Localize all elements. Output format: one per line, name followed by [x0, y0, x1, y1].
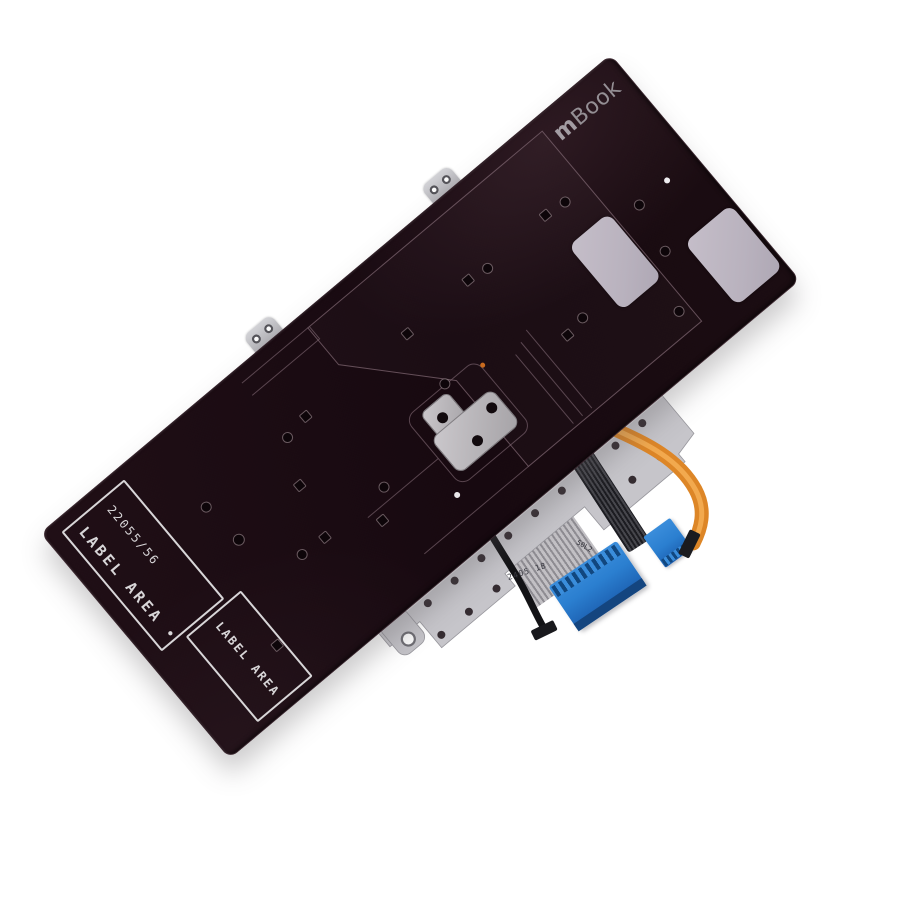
- reflective-dot: [453, 491, 461, 499]
- screw-hole: [428, 184, 441, 197]
- keyboard-backplate-assembly: 2405 1B 50L2: [40, 54, 800, 759]
- screw-hole: [250, 333, 263, 346]
- screw-hole: [262, 322, 275, 335]
- reflective-dot: [663, 176, 671, 184]
- thin-strip-cable: [474, 532, 559, 628]
- product-photo-background: 2405 1B 50L2: [0, 0, 900, 900]
- screw-hole: [440, 173, 453, 186]
